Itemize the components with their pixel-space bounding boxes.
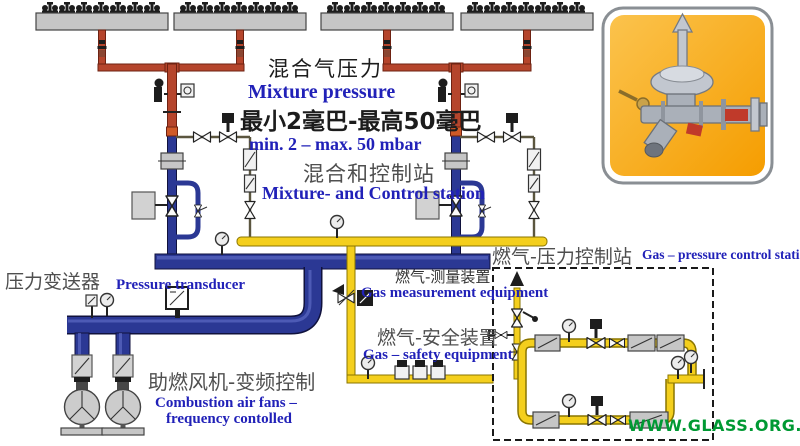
burner-manifold-3 <box>321 2 453 30</box>
label-fans-en-1: Combustion air fans – <box>155 395 297 411</box>
fan-1 <box>61 333 103 435</box>
process-diagram: 混合气压力 Mixture pressure 最小2毫巴-最高50毫巴 min.… <box>0 0 800 446</box>
label-gas-station-en: Gas – pressure control station <box>642 247 800 262</box>
air-header-gauge <box>216 233 229 256</box>
label-safety-en: Gas – safety equipment <box>363 347 513 363</box>
label-gas-station-zh: 燃气-压力控制站 <box>492 246 632 268</box>
burner-manifolds <box>36 2 593 30</box>
label-mixture-pressure-zh: 混合气压力 <box>268 57 383 81</box>
label-measurement-zh: 燃气-测量装置 <box>395 268 490 286</box>
gas-header <box>237 237 547 246</box>
label-fans-zh: 助燃风机-变频控制 <box>148 370 315 394</box>
label-transducer-zh: 压力变送器 <box>5 271 100 293</box>
mixture-train-right <box>416 63 541 257</box>
label-transducer-en: Pressure transducer <box>116 277 245 293</box>
watermark: WWW.GLASS.ORG.CN <box>628 416 800 435</box>
label-mixture-pressure-en: Mixture pressure <box>248 81 395 103</box>
mixture-train-left <box>132 63 257 257</box>
gas-riser <box>347 245 355 381</box>
label-fans-en-2: frequency contolled <box>166 411 293 427</box>
label-safety-zh: 燃气-安全装置 <box>377 327 498 349</box>
regulator-upper-equipment <box>535 319 684 351</box>
label-measurement-en: Gas measurement equipment <box>361 285 548 301</box>
label-pressure-range-zh: 最小2毫巴-最高50毫巴 <box>240 108 482 135</box>
fan-2 <box>102 333 144 435</box>
regulator-photo-panel <box>603 8 772 183</box>
label-control-station-en: Mixture- and Control station <box>262 183 485 203</box>
burner-manifold-1 <box>36 2 168 30</box>
burner-manifold-2 <box>174 2 306 30</box>
vent-arrow-icon <box>510 271 524 286</box>
gas-header-gauge <box>331 216 344 239</box>
burner-manifold-4 <box>461 2 593 30</box>
diagram-canvas: 混合气压力 Mixture pressure 最小2毫巴-最高50毫巴 min.… <box>0 0 800 446</box>
label-pressure-range-en: min. 2 – max. 50 mbar <box>249 134 422 154</box>
